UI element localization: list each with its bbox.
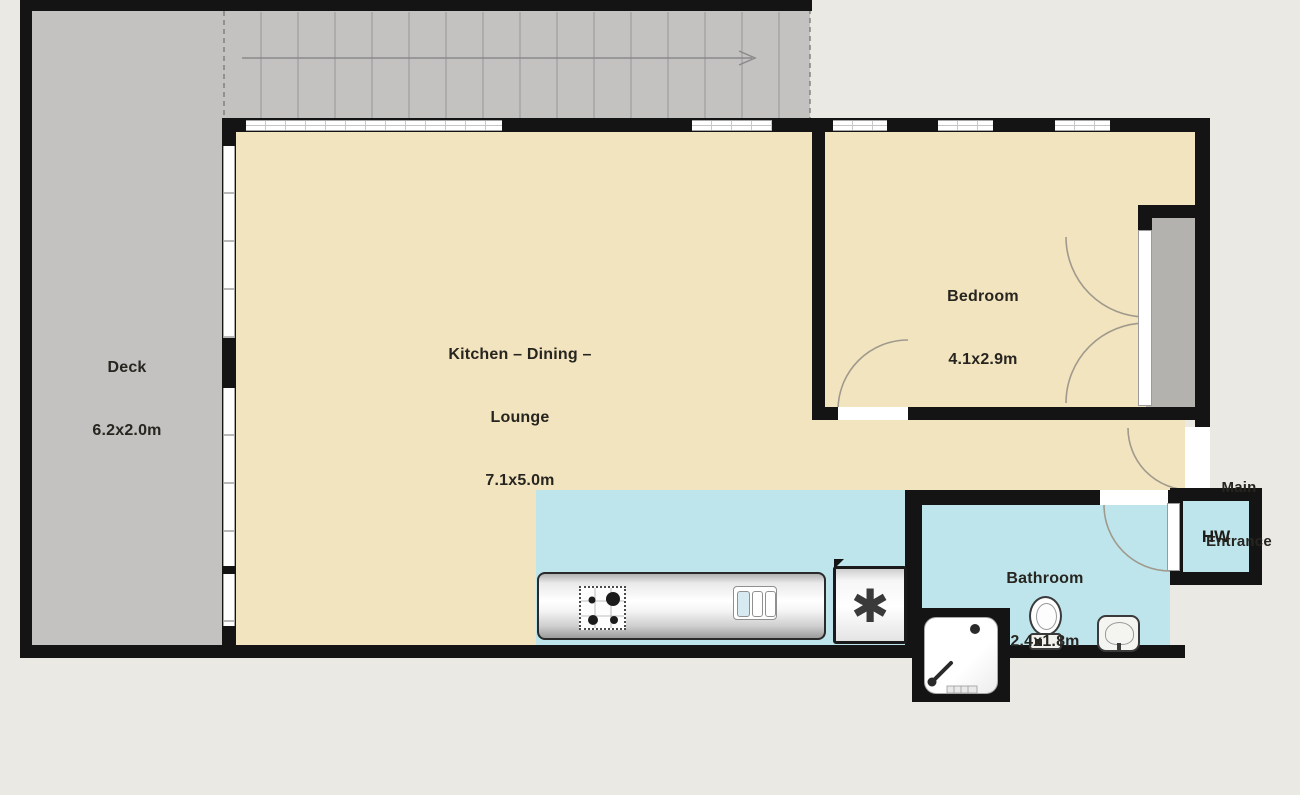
entrance-line1: Main [1183,479,1295,497]
window [833,120,887,131]
kitchen-sink-icon [733,586,777,620]
bathroom-door-leaf [1167,503,1180,571]
floor-plan: HW ✱ [0,0,1300,795]
fridge-freezer-icon: ✱ [833,566,907,644]
living-name-line2: Lounge [420,407,620,428]
bedroom-door-opening [838,407,908,420]
bedroom-dimensions: 4.1x2.9m [903,349,1063,370]
hallway-floor [825,420,1185,493]
window [1055,120,1110,131]
living-room-label: Kitchen – Dining – Lounge 7.1x5.0m [420,302,620,533]
fridge-hinge-mark [834,559,844,569]
window [938,120,993,131]
window [692,120,772,131]
wardrobe-door-track [1138,230,1152,406]
entrance-line2: Entrance [1183,533,1295,551]
wall-left [20,0,32,658]
bedroom-name: Bedroom [903,286,1063,307]
bathroom-dimensions: 2.4x1.8m [965,631,1125,652]
deck-dimensions: 6.2x2.0m [47,420,207,441]
bathroom-label: Bathroom 2.4x1.8m [965,526,1125,694]
window [223,388,235,566]
window [223,574,235,626]
bathroom-name: Bathroom [965,568,1125,589]
deck-label: Deck 6.2x2.0m [47,315,207,483]
bathroom-door-opening [1100,490,1168,505]
living-dimensions: 7.1x5.0m [420,470,620,491]
wall-living-bedroom-divider [812,118,825,420]
wall-right [1195,118,1210,428]
deck-name: Deck [47,357,207,378]
stairs-area [224,11,810,118]
wardrobe-floor [1146,218,1195,407]
freezer-symbol-icon: ✱ [851,583,890,629]
window [223,146,235,338]
bedroom-label: Bedroom 4.1x2.9m [903,244,1063,412]
stove-icon [579,586,626,630]
window [246,120,502,131]
living-name-line1: Kitchen – Dining – [420,344,620,365]
main-entrance-label: Main Entrance [1183,443,1295,587]
wall-top [20,0,812,11]
disclaimer-text: The contents of this Floor Plan are appr… [18,778,618,795]
